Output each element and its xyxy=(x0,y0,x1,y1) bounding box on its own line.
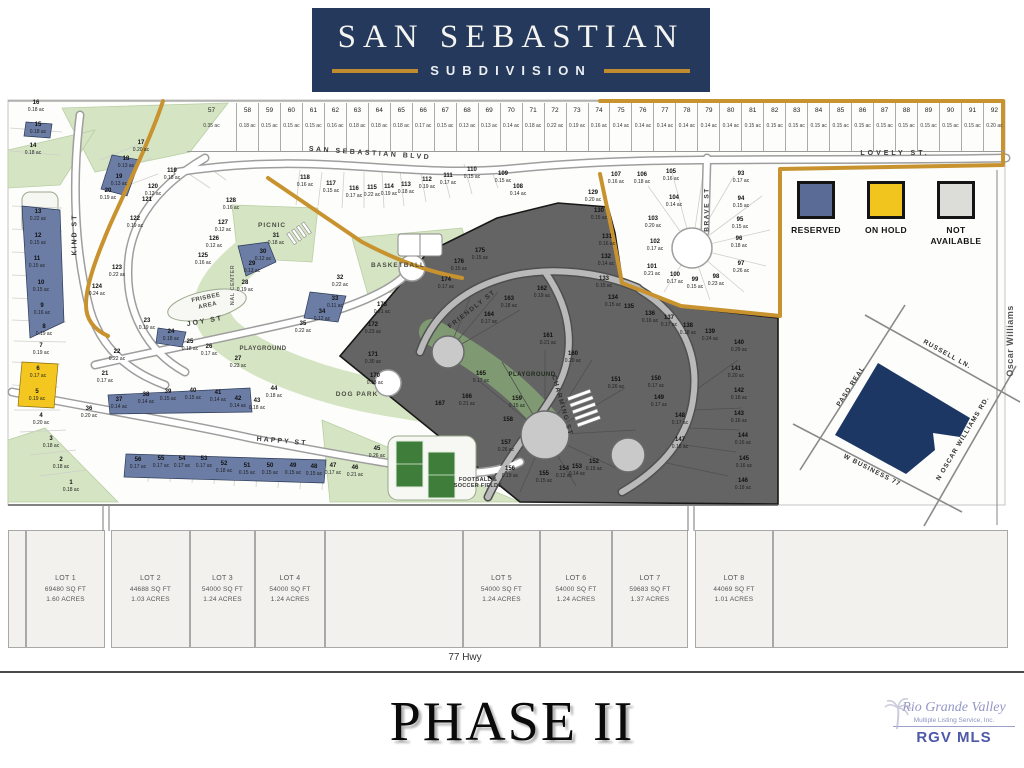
top-lot-acreage: 0.14 ac xyxy=(676,123,697,129)
top-lot-number: 76 xyxy=(632,107,653,114)
top-lot-acreage: 0.15 ac xyxy=(962,123,983,129)
top-lot-cell: 680.13 ac xyxy=(456,103,478,151)
top-lot-acreage: 0.15 ac xyxy=(852,123,873,129)
top-lot-cell: 570.35 ac xyxy=(187,103,236,151)
top-lot-number: 59 xyxy=(259,107,280,114)
top-lot-acreage: 0.15 ac xyxy=(874,123,895,129)
top-lot-number: 91 xyxy=(962,107,983,114)
top-lot-acreage: 0.15 ac xyxy=(435,123,456,129)
top-lot-number: 81 xyxy=(742,107,763,114)
top-lot-acreage: 0.14 ac xyxy=(698,123,719,129)
top-lot-number: 90 xyxy=(940,107,961,114)
top-lot-acreage: 0.18 ac xyxy=(391,123,412,129)
onhold-parcels xyxy=(18,362,58,408)
legend-item-0: RESERVED xyxy=(783,181,849,246)
top-lot-acreage: 0.16 ac xyxy=(589,123,610,129)
top-lot-acreage: 0.14 ac xyxy=(720,123,741,129)
top-lot-acreage: 0.15 ac xyxy=(786,123,807,129)
legend-swatch-1 xyxy=(867,181,905,219)
top-lot-row: 570.35 ac580.18 ac590.15 ac600.15 ac610.… xyxy=(187,103,1005,152)
top-lot-cell: 900.15 ac xyxy=(939,103,961,151)
top-lot-cell: 710.18 ac xyxy=(522,103,544,151)
top-lot-number: 62 xyxy=(325,107,346,114)
top-lot-number: 60 xyxy=(281,107,302,114)
top-lot-acreage: 0.13 ac xyxy=(479,123,500,129)
road-stubs xyxy=(103,505,694,531)
top-lot-acreage: 0.19 ac xyxy=(567,123,588,129)
gold-rule-left xyxy=(332,69,418,73)
top-lot-cell: 730.19 ac xyxy=(566,103,588,151)
top-lot-cell: 600.15 ac xyxy=(280,103,302,151)
top-lot-cell: 630.18 ac xyxy=(346,103,368,151)
top-lot-number: 88 xyxy=(896,107,917,114)
top-lot-cell: 780.14 ac xyxy=(675,103,697,151)
top-lot-cell: 660.17 ac xyxy=(412,103,434,151)
top-lot-number: 73 xyxy=(567,107,588,114)
mls-abbr: RGV MLS xyxy=(885,729,1023,746)
top-lot-number: 68 xyxy=(457,107,478,114)
top-lot-cell: 800.14 ac xyxy=(719,103,741,151)
subdivision-subtitle: SUBDIVISION xyxy=(430,63,592,78)
top-lot-cell: 610.15 ac xyxy=(302,103,324,151)
top-lot-cell: 650.18 ac xyxy=(390,103,412,151)
top-lot-acreage: 0.18 ac xyxy=(523,123,544,129)
plat-sheet: SAN SEBASTIAN SUBDIVISION RESERVEDON HOL… xyxy=(0,0,1024,768)
legend-label-2: NOT AVAILABLE xyxy=(923,225,989,246)
top-lot-number: 85 xyxy=(830,107,851,114)
top-lot-number: 84 xyxy=(808,107,829,114)
top-lot-acreage: 0.35 ac xyxy=(187,123,236,129)
top-lot-number: 74 xyxy=(589,107,610,114)
top-lot-cell: 870.15 ac xyxy=(873,103,895,151)
top-lot-cell: 850.15 ac xyxy=(829,103,851,151)
top-lot-cell: 890.15 ac xyxy=(917,103,939,151)
top-lot-acreage: 0.17 ac xyxy=(413,123,434,129)
top-lot-acreage: 0.14 ac xyxy=(632,123,653,129)
top-lot-acreage: 0.13 ac xyxy=(457,123,478,129)
top-lot-cell: 810.15 ac xyxy=(741,103,763,151)
top-lot-acreage: 0.18 ac xyxy=(347,123,368,129)
top-lot-acreage: 0.14 ac xyxy=(610,123,631,129)
subdivision-title: SAN SEBASTIAN xyxy=(338,19,685,56)
top-lot-acreage: 0.15 ac xyxy=(259,123,280,129)
top-lot-acreage: 0.15 ac xyxy=(896,123,917,129)
top-lot-acreage: 0.20 ac xyxy=(984,123,1005,129)
top-lot-number: 64 xyxy=(369,107,390,114)
top-lot-cell: 590.15 ac xyxy=(258,103,280,151)
top-lot-acreage: 0.14 ac xyxy=(654,123,675,129)
top-lot-acreage: 0.15 ac xyxy=(303,123,324,129)
top-lot-cell: 690.13 ac xyxy=(478,103,500,151)
highway-label: 77 Hwy xyxy=(0,652,930,663)
top-lot-cell: 880.15 ac xyxy=(895,103,917,151)
top-lot-number: 66 xyxy=(413,107,434,114)
top-lot-cell: 720.22 ac xyxy=(544,103,566,151)
top-lot-cell: 920.20 ac xyxy=(983,103,1005,151)
top-lot-number: 67 xyxy=(435,107,456,114)
top-lot-number: 87 xyxy=(874,107,895,114)
top-lot-number: 78 xyxy=(676,107,697,114)
top-lot-acreage: 0.15 ac xyxy=(918,123,939,129)
soccer-fields xyxy=(388,436,476,500)
title-banner: SAN SEBASTIAN SUBDIVISION xyxy=(312,8,710,92)
top-lot-acreage: 0.14 ac xyxy=(501,123,522,129)
legend-label-1: ON HOLD xyxy=(853,225,919,236)
top-lot-cell: 700.14 ac xyxy=(500,103,522,151)
basketball-court xyxy=(398,234,442,256)
top-lot-number: 69 xyxy=(479,107,500,114)
top-lot-cell: 790.14 ac xyxy=(697,103,719,151)
top-lot-cell: 580.18 ac xyxy=(236,103,258,151)
top-lot-cell: 830.15 ac xyxy=(785,103,807,151)
top-lot-acreage: 0.18 ac xyxy=(237,123,258,129)
mls-logo: Rio Grande Valley Multiple Listing Servi… xyxy=(885,700,1023,746)
top-lot-number: 70 xyxy=(501,107,522,114)
top-lot-number: 65 xyxy=(391,107,412,114)
top-lot-cell: 760.14 ac xyxy=(631,103,653,151)
top-lot-number: 63 xyxy=(347,107,368,114)
top-lot-cell: 820.15 ac xyxy=(763,103,785,151)
legend-item-1: ON HOLD xyxy=(853,181,919,246)
gold-rule-right xyxy=(604,69,690,73)
top-lot-number: 83 xyxy=(786,107,807,114)
legend-swatch-2 xyxy=(937,181,975,219)
top-lot-number: 82 xyxy=(764,107,785,114)
phase-title: PHASE II xyxy=(0,690,1024,754)
top-lot-cell: 840.15 ac xyxy=(807,103,829,151)
top-lot-number: 89 xyxy=(918,107,939,114)
top-lot-acreage: 0.15 ac xyxy=(764,123,785,129)
top-lot-number: 92 xyxy=(984,107,1005,114)
legend-swatch-0 xyxy=(797,181,835,219)
top-lot-cell: 770.14 ac xyxy=(653,103,675,151)
top-lot-acreage: 0.18 ac xyxy=(369,123,390,129)
palm-tree-icon xyxy=(883,696,913,730)
top-lot-number: 71 xyxy=(523,107,544,114)
top-lot-cell: 670.15 ac xyxy=(434,103,456,151)
legend: RESERVEDON HOLDNOT AVAILABLE xyxy=(783,181,989,246)
top-lot-acreage: 0.15 ac xyxy=(808,123,829,129)
top-lot-number: 72 xyxy=(545,107,566,114)
top-lot-acreage: 0.15 ac xyxy=(742,123,763,129)
legend-label-0: RESERVED xyxy=(783,225,849,236)
top-lot-cell: 910.15 ac xyxy=(961,103,983,151)
top-lot-cell: 860.15 ac xyxy=(851,103,873,151)
top-lot-number: 77 xyxy=(654,107,675,114)
top-lot-number: 57 xyxy=(187,107,236,114)
top-lot-acreage: 0.15 ac xyxy=(940,123,961,129)
top-lot-acreage: 0.22 ac xyxy=(545,123,566,129)
top-lot-number: 86 xyxy=(852,107,873,114)
top-lot-cell: 640.18 ac xyxy=(368,103,390,151)
top-lot-number: 80 xyxy=(720,107,741,114)
top-lot-number: 58 xyxy=(237,107,258,114)
top-lot-number: 75 xyxy=(610,107,631,114)
top-lot-acreage: 0.15 ac xyxy=(830,123,851,129)
top-lot-cell: 740.16 ac xyxy=(588,103,610,151)
top-lot-cell: 750.14 ac xyxy=(609,103,631,151)
top-lot-number: 79 xyxy=(698,107,719,114)
legend-item-2: NOT AVAILABLE xyxy=(923,181,989,246)
top-lot-acreage: 0.16 ac xyxy=(325,123,346,129)
top-lot-acreage: 0.15 ac xyxy=(281,123,302,129)
top-lot-cell: 620.16 ac xyxy=(324,103,346,151)
top-lot-number: 61 xyxy=(303,107,324,114)
